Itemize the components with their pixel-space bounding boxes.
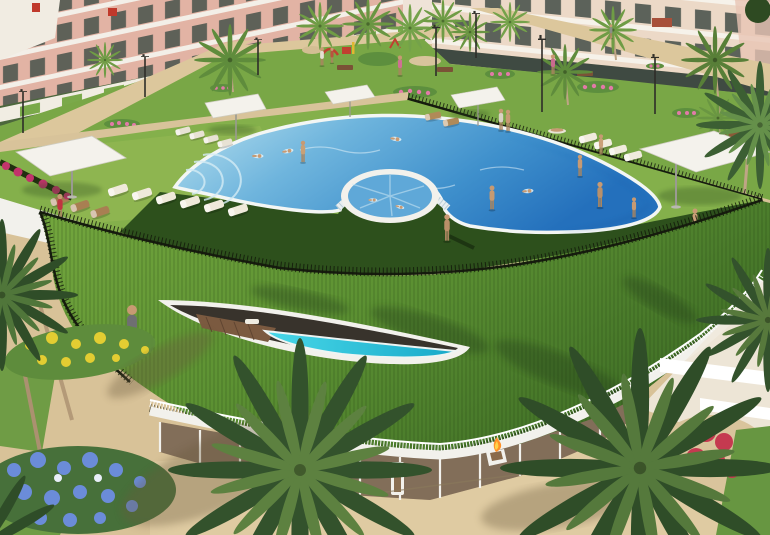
pergola: [652, 18, 672, 27]
person-lying: [551, 128, 564, 132]
rendering-canvas: [0, 0, 770, 535]
resort-rendering-image: [0, 0, 770, 535]
balcony-flower-box: [108, 8, 117, 16]
indoor-lounger: [245, 319, 259, 324]
balcony-flower-box: [32, 3, 40, 12]
kids-pool: [341, 169, 439, 223]
